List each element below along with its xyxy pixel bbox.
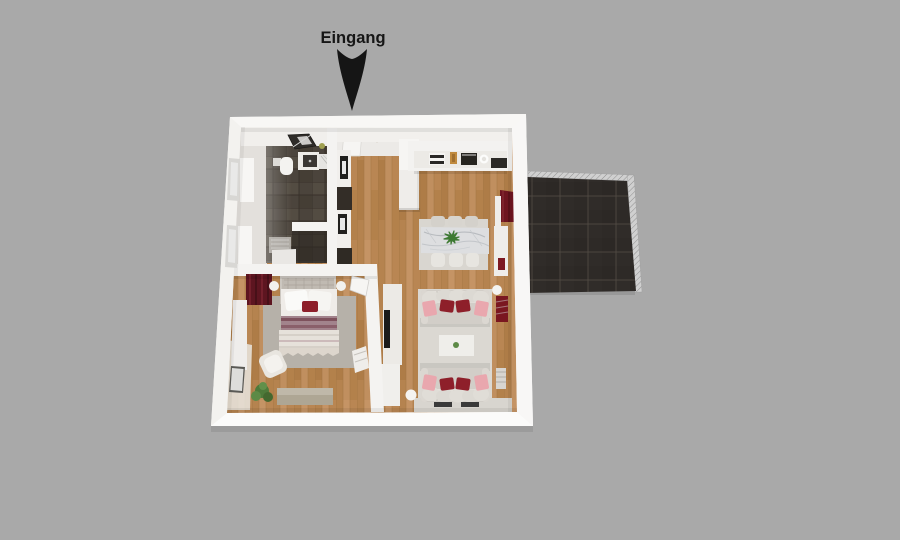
svg-text:Eingang: Eingang (320, 29, 385, 47)
